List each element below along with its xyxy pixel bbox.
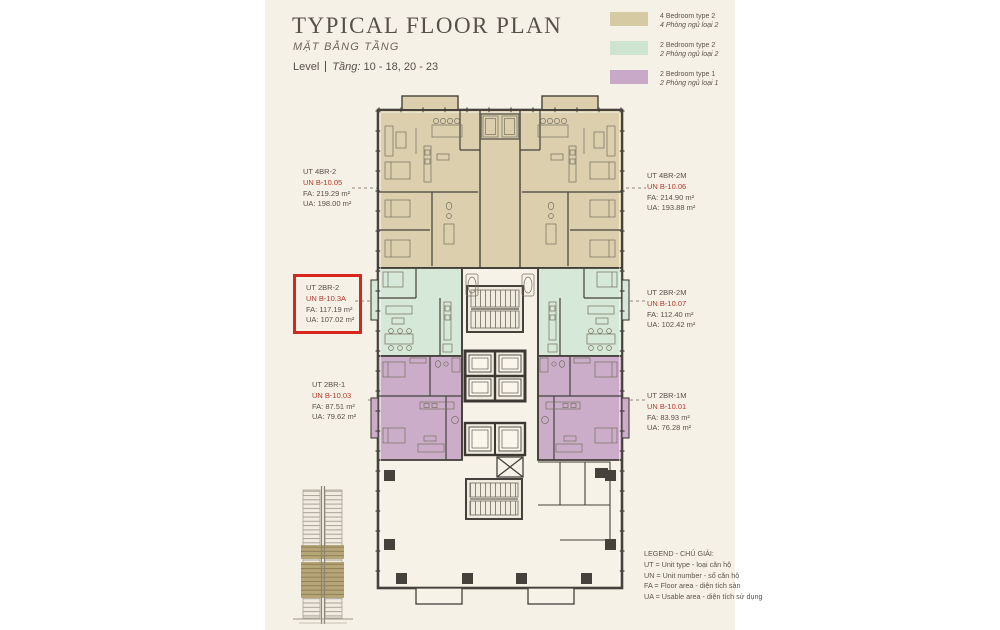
abbreviation-legend-title: LEGEND - CHÚ GIẢI: <box>644 549 762 560</box>
level-indicator: LevelTầng: 10 - 18, 20 - 23 <box>293 61 438 73</box>
unit-label-b-10-3a-highlighted[interactable]: UT 2BR-2 UN B-10.3A FA: 117.19 m² UA: 10… <box>293 274 362 334</box>
unit-usable-area: UA: 79.62 m² <box>312 412 356 423</box>
level-prefix: Tầng: <box>332 61 360 73</box>
unit-region-b-10-06[interactable] <box>520 110 622 268</box>
keyplan-tower <box>293 486 353 624</box>
unit-floor-area: FA: 87.51 m² <box>312 402 356 413</box>
unit-label-b-10-03[interactable]: UT 2BR-1 UN B-10.03 FA: 87.51 m² UA: 79.… <box>312 380 356 423</box>
unit-type: UT 2BR-2M <box>647 288 695 299</box>
legend-item-2br2: 2 Bedroom type 2 2 Phòng ngủ loại 2 <box>610 41 718 59</box>
abbreviation-fa: FA = Floor area - diện tích sàn <box>644 581 762 592</box>
legend-label-vn: 2 Phòng ngủ loại 1 <box>660 79 718 88</box>
unit-region-b-10-05[interactable] <box>378 110 480 268</box>
unit-number: UN B-10.03 <box>312 391 356 402</box>
unit-number: UN B-10.01 <box>647 402 691 413</box>
unit-type: UT 2BR-1 <box>312 380 356 391</box>
unit-type: UT 4BR-2 <box>303 167 351 178</box>
unit-number: UN B-10.3A <box>306 294 354 305</box>
unit-usable-area: UA: 102.42 m² <box>647 320 695 331</box>
unit-usable-area: UA: 76.28 m² <box>647 423 691 434</box>
level-divider <box>325 61 326 72</box>
unit-floor-area: FA: 83.93 m² <box>647 413 691 424</box>
unit-label-b-10-05[interactable]: UT 4BR-2 UN B-10.05 FA: 219.29 m² UA: 19… <box>303 167 351 210</box>
unit-usable-area: UA: 198.00 m² <box>303 199 351 210</box>
unit-type-legend: 4 Bedroom type 2 4 Phòng ngủ loại 2 2 Be… <box>610 12 718 99</box>
unit-floor-area: FA: 112.40 m² <box>647 310 695 321</box>
unit-number: UN B-10.07 <box>647 299 695 310</box>
unit-number: UN B-10.05 <box>303 178 351 189</box>
abbreviation-ua: UA = Usable area - diện tích sử dụng <box>644 592 762 603</box>
unit-type: UT 4BR-2M <box>647 171 695 182</box>
legend-item-4br2: 4 Bedroom type 2 4 Phòng ngủ loại 2 <box>610 12 718 30</box>
page-title: TYPICAL FLOOR PLAN <box>292 13 562 39</box>
unit-region-b-10-3a[interactable] <box>378 268 462 356</box>
unit-label-b-10-07[interactable]: UT 2BR-2M UN B-10.07 FA: 112.40 m² UA: 1… <box>647 288 695 331</box>
legend-item-2br1: 2 Bedroom type 1 2 Phòng ngủ loại 1 <box>610 70 718 88</box>
level-label: Level <box>293 61 319 73</box>
unit-usable-area: UA: 107.02 m² <box>306 315 354 326</box>
abbreviation-ut: UT = Unit type - loại căn hộ <box>644 560 762 571</box>
legend-label-vn: 2 Phòng ngủ loại 2 <box>660 50 718 59</box>
unit-type: UT 2BR-2 <box>306 283 354 294</box>
unit-region-b-10-03[interactable] <box>378 356 462 460</box>
abbreviation-un: UN = Unit number - số căn hộ <box>644 571 762 582</box>
unit-floor-area: FA: 117.19 m² <box>306 305 354 316</box>
legend-swatch-4br2 <box>610 12 648 26</box>
legend-swatch-2br2 <box>610 41 648 55</box>
legend-swatch-2br1 <box>610 70 648 84</box>
page-subtitle: MẶT BẰNG TẦNG <box>293 41 400 53</box>
unit-type: UT 2BR-1M <box>647 391 691 402</box>
unit-label-b-10-06[interactable]: UT 4BR-2M UN B-10.06 FA: 214.90 m² UA: 1… <box>647 171 695 214</box>
unit-number: UN B-10.06 <box>647 182 695 193</box>
legend-label-vn: 4 Phòng ngủ loại 2 <box>660 21 718 30</box>
legend-label-en: 2 Bedroom type 1 <box>660 70 718 79</box>
unit-region-b-10-07[interactable] <box>538 268 622 356</box>
unit-floor-area: FA: 214.90 m² <box>647 193 695 204</box>
level-range: 10 - 18, 20 - 23 <box>364 61 439 73</box>
unit-floor-area: FA: 219.29 m² <box>303 189 351 200</box>
legend-label-en: 2 Bedroom type 2 <box>660 41 718 50</box>
unit-region-b-10-01[interactable] <box>538 356 622 460</box>
abbreviation-legend: LEGEND - CHÚ GIẢI: UT = Unit type - loại… <box>644 549 762 603</box>
unit-usable-area: UA: 193.88 m² <box>647 203 695 214</box>
unit-label-b-10-01[interactable]: UT 2BR-1M UN B-10.01 FA: 83.93 m² UA: 76… <box>647 391 691 434</box>
floor-plan-page: TYPICAL FLOOR PLAN MẶT BẰNG TẦNG LevelTầ… <box>0 0 1000 630</box>
legend-label-en: 4 Bedroom type 2 <box>660 12 718 21</box>
